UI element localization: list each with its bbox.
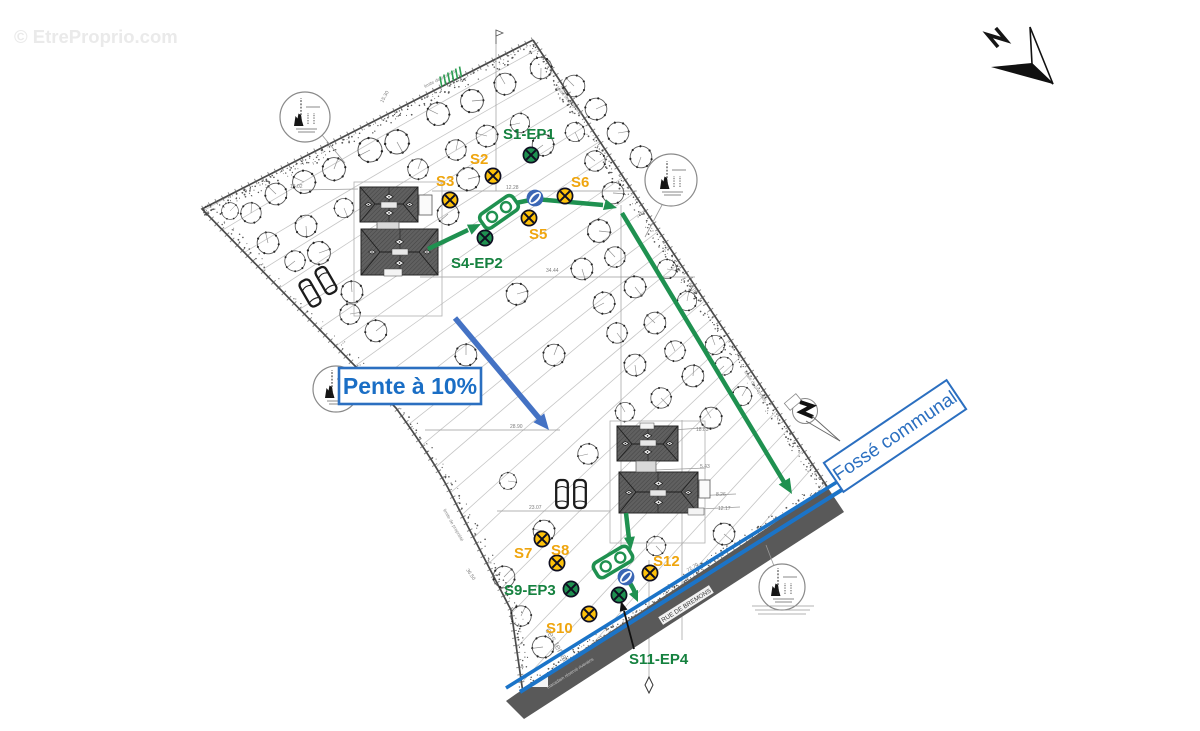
svg-text:S7: S7 bbox=[514, 545, 532, 562]
svg-text:28.90: 28.90 bbox=[510, 424, 523, 430]
svg-text:8.26: 8.26 bbox=[716, 492, 726, 498]
svg-text:S6: S6 bbox=[571, 174, 589, 191]
svg-text:S4-EP2: S4-EP2 bbox=[451, 255, 503, 272]
svg-text:13.02: 13.02 bbox=[290, 184, 303, 190]
svg-text:S10: S10 bbox=[546, 620, 573, 637]
svg-text:S3: S3 bbox=[436, 173, 454, 190]
svg-text:12.28: 12.28 bbox=[506, 185, 519, 191]
svg-text:S8: S8 bbox=[551, 542, 569, 559]
svg-text:S11-EP4: S11-EP4 bbox=[629, 651, 689, 668]
svg-text:© EtreProprio.com: © EtreProprio.com bbox=[14, 26, 178, 47]
svg-text:S2: S2 bbox=[470, 151, 488, 168]
svg-text:34.44: 34.44 bbox=[546, 268, 559, 274]
svg-text:S9-EP3: S9-EP3 bbox=[504, 582, 556, 599]
svg-text:Pente à 10%: Pente à 10% bbox=[343, 373, 477, 399]
svg-text:S5: S5 bbox=[529, 226, 547, 243]
svg-text:23.07: 23.07 bbox=[529, 505, 542, 511]
svg-text:S1-EP1: S1-EP1 bbox=[503, 126, 555, 143]
svg-text:S12: S12 bbox=[653, 553, 680, 570]
svg-text:12.17: 12.17 bbox=[718, 506, 731, 512]
